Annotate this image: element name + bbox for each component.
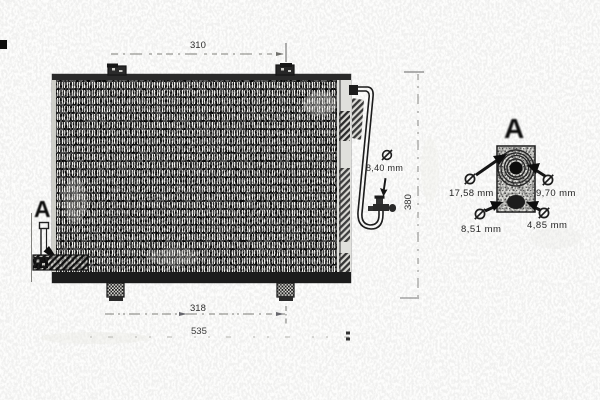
svg-text:4,85 mm: 4,85 mm <box>527 220 567 231</box>
svg-text:17,58 mm: 17,58 mm <box>449 188 494 199</box>
svg-text:8,51 mm: 8,51 mm <box>461 224 501 235</box>
svg-text:A: A <box>34 196 51 222</box>
svg-text:9,70 mm: 9,70 mm <box>536 188 576 199</box>
svg-text:318: 318 <box>190 303 206 314</box>
svg-text:A: A <box>504 113 524 144</box>
svg-text:380: 380 <box>403 194 414 210</box>
svg-text:310: 310 <box>190 40 206 51</box>
svg-text:535: 535 <box>191 326 207 337</box>
svg-text:8,40 mm: 8,40 mm <box>366 163 403 173</box>
